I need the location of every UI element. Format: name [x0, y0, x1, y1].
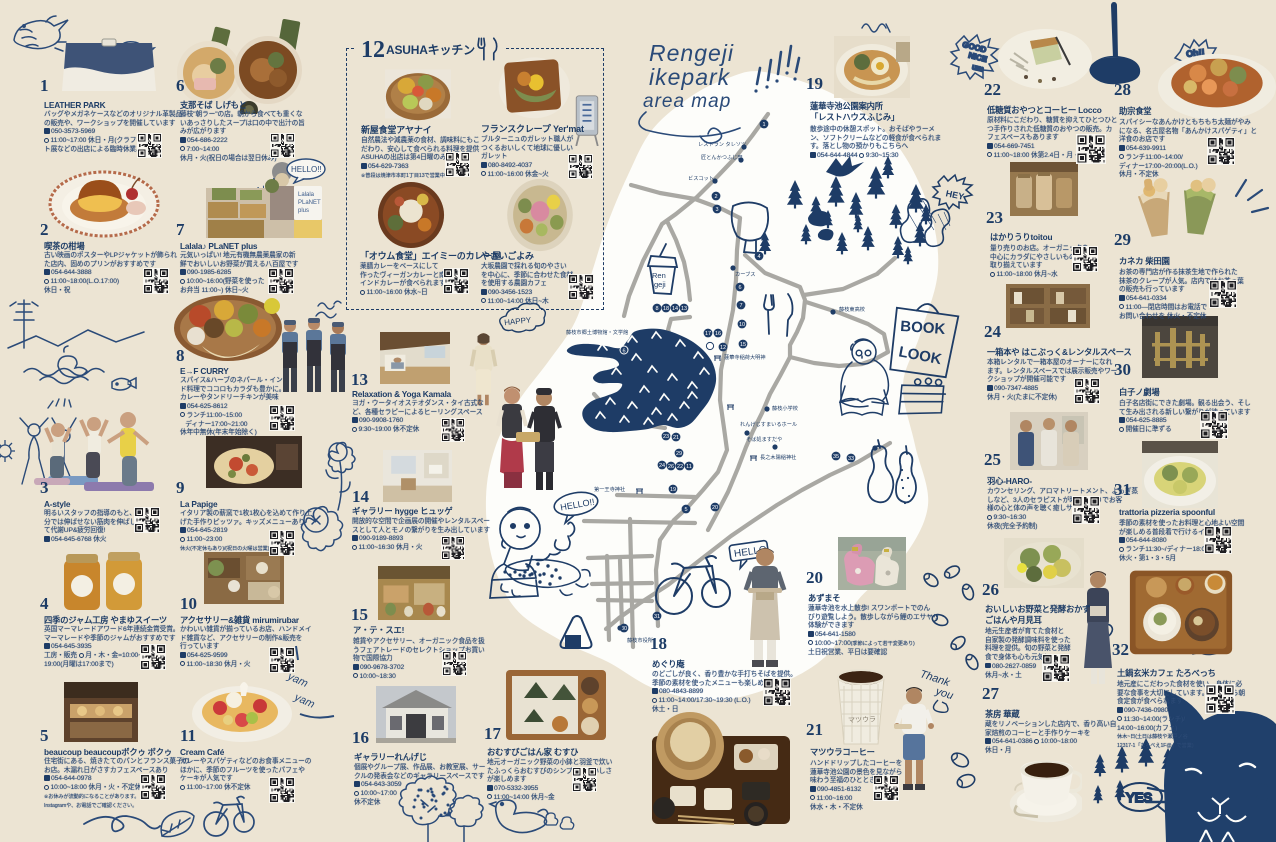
- svg-text:29: 29: [676, 451, 682, 457]
- svg-text:カーブス: カーブス: [735, 270, 755, 278]
- svg-text:1: 1: [762, 122, 765, 128]
- svg-text:藤枝東高校: 藤枝東高校: [839, 305, 865, 313]
- svg-text:3: 3: [715, 207, 718, 213]
- svg-text:HELLO!!: HELLO!!: [291, 165, 322, 174]
- svg-text:6: 6: [738, 285, 741, 291]
- svg-text:れんげじすまいるホール: れんげじすまいるホール: [740, 420, 797, 428]
- svg-text:33: 33: [848, 456, 854, 462]
- svg-text:23: 23: [663, 434, 669, 440]
- svg-text:15: 15: [740, 342, 746, 348]
- svg-text:Rengeji: Rengeji: [649, 40, 734, 66]
- svg-text:18: 18: [663, 306, 669, 312]
- svg-text:5: 5: [684, 507, 687, 513]
- svg-text:ikepark: ikepark: [649, 64, 731, 90]
- svg-text:12: 12: [720, 345, 726, 351]
- svg-text:長之木陽稲神社: 長之木陽稲神社: [760, 453, 796, 461]
- svg-text:第一王寺神社: 第一王寺神社: [594, 485, 625, 493]
- svg-text:10: 10: [739, 322, 745, 328]
- svg-text:yam: yam: [292, 691, 317, 711]
- svg-text:BOOK: BOOK: [900, 318, 946, 338]
- svg-text:8: 8: [655, 306, 658, 312]
- svg-text:13: 13: [681, 306, 687, 312]
- svg-text:26: 26: [668, 464, 674, 470]
- svg-text:19: 19: [670, 487, 676, 493]
- svg-text:um: um: [971, 62, 985, 74]
- svg-text:ビスコット: ビスコット: [688, 174, 714, 182]
- svg-text:HAPPY: HAPPY: [504, 315, 533, 327]
- svg-text:蓮華寺稲荷大明神: 蓮華寺稲荷大明神: [724, 353, 766, 361]
- svg-text:22: 22: [677, 464, 683, 470]
- svg-text:21: 21: [673, 435, 679, 441]
- svg-text:藤枝市郷土博物館・文学館: 藤枝市郷土博物館・文学館: [566, 328, 628, 336]
- svg-text:藤枝小学校: 藤枝小学校: [772, 404, 798, 412]
- svg-text:11: 11: [686, 464, 692, 470]
- svg-text:2: 2: [714, 194, 717, 200]
- svg-text:plus: plus: [298, 208, 309, 214]
- svg-text:4: 4: [757, 254, 760, 260]
- svg-text:20: 20: [712, 505, 718, 511]
- svg-text:you: you: [933, 685, 955, 702]
- svg-text:area map: area map: [643, 91, 731, 112]
- svg-text:PLaNET: PLaNET: [298, 200, 321, 206]
- svg-text:geji: geji: [654, 280, 666, 289]
- svg-text:7: 7: [739, 303, 742, 309]
- svg-text:17: 17: [705, 331, 711, 337]
- svg-text:35: 35: [833, 454, 839, 460]
- svg-text:31: 31: [654, 614, 660, 620]
- svg-text:Lalala: Lalala: [298, 192, 315, 198]
- svg-text:24: 24: [659, 463, 665, 469]
- svg-text:HEY: HEY: [945, 188, 965, 202]
- svg-text:16: 16: [715, 331, 721, 337]
- svg-text:14: 14: [672, 306, 678, 312]
- svg-text:匠とんかつふじ田: 匠とんかつふじ田: [701, 154, 743, 161]
- svg-text:マツウラ: マツウラ: [848, 715, 876, 724]
- svg-text:そば処ますだや: そば処ますだや: [746, 435, 782, 443]
- svg-text:6: 6: [622, 349, 625, 355]
- svg-text:Ren: Ren: [652, 271, 666, 280]
